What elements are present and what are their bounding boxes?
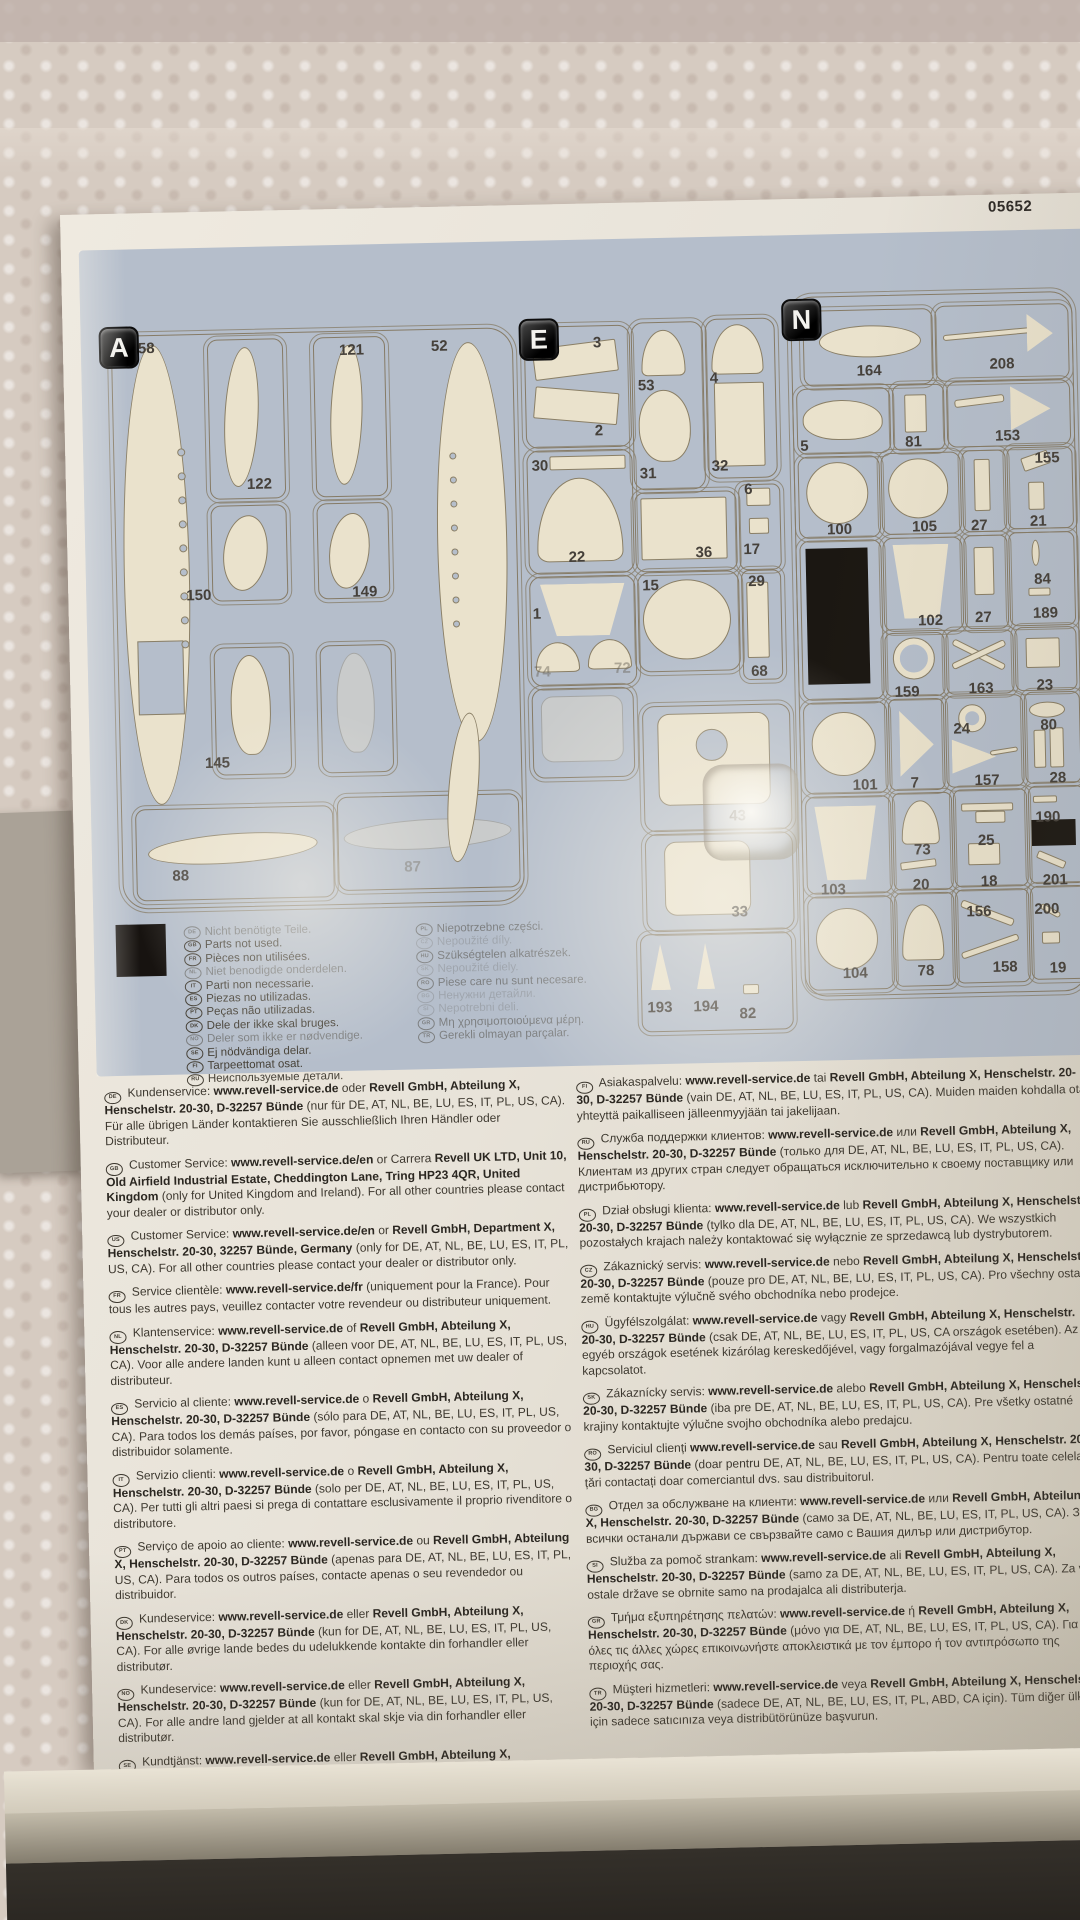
page-behind-sheet <box>0 811 84 1174</box>
photo-vignette <box>60 191 1080 1770</box>
paper-towel-top-band <box>0 0 1080 42</box>
instruction-sheet: 05652 5812152122150149145888732533143230… <box>60 191 1080 1770</box>
paper-towel-ridge <box>0 128 1080 174</box>
photo-of-instruction-sheet: 05652 5812152122150149145888732533143230… <box>0 0 1080 1920</box>
